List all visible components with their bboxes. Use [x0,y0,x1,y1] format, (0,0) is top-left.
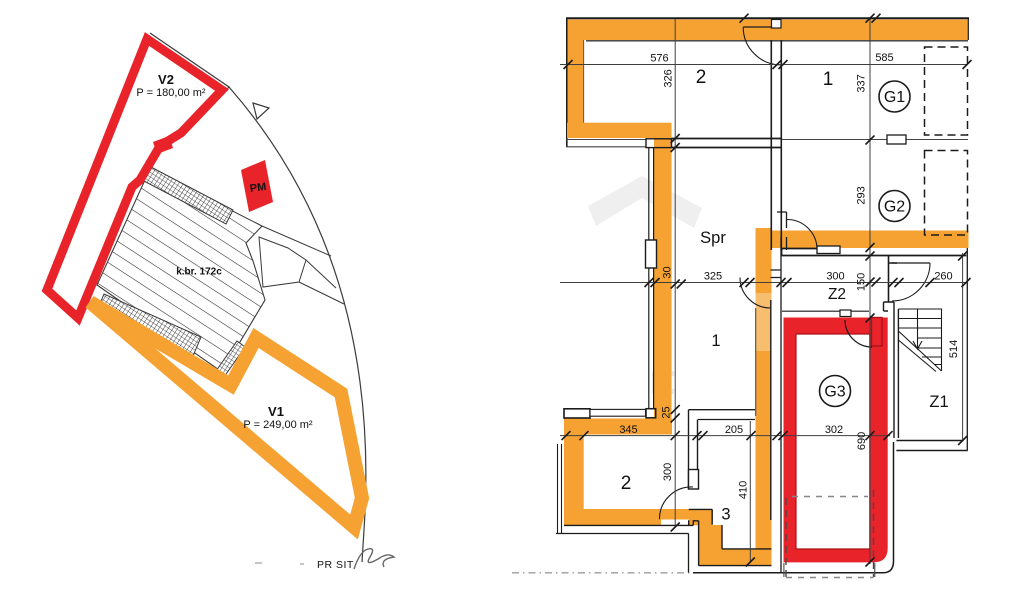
svg-text:k.br. 172c: k.br. 172c [176,267,222,278]
svg-text:345: 345 [619,424,637,436]
svg-text:300: 300 [826,271,844,283]
svg-text:25: 25 [661,406,673,418]
svg-text:G2: G2 [884,199,905,216]
svg-text:576: 576 [650,53,668,65]
svg-text:V2: V2 [158,72,174,87]
svg-text:1: 1 [711,332,720,350]
svg-text:G1: G1 [884,89,905,106]
svg-text:PM: PM [249,181,267,195]
svg-text:2: 2 [621,473,632,494]
svg-text:Z2: Z2 [828,286,846,303]
svg-text:585: 585 [875,52,893,64]
svg-text:G3: G3 [824,384,845,401]
svg-text:Z1: Z1 [929,393,948,411]
svg-text:205: 205 [725,424,743,436]
svg-text:Spr: Spr [700,229,726,247]
svg-text:150: 150 [856,273,868,291]
svg-text:337: 337 [856,74,868,92]
svg-text:V1: V1 [268,404,284,419]
svg-text:260: 260 [934,271,952,283]
svg-text:326: 326 [663,69,675,87]
svg-text:293: 293 [856,186,868,204]
svg-text:3: 3 [721,506,730,524]
svg-text:P = 180,00 m²: P = 180,00 m² [136,87,206,99]
svg-text:325: 325 [704,271,722,283]
svg-text:690: 690 [856,432,868,450]
svg-text:2: 2 [696,67,707,88]
svg-text:514: 514 [948,340,960,358]
svg-text:PR SIT: PR SIT [317,559,354,571]
svg-text:302: 302 [825,424,843,436]
svg-text:P = 249,00 m²: P = 249,00 m² [243,419,313,431]
svg-text:1: 1 [823,69,834,90]
svg-text:300: 300 [662,463,674,481]
svg-text:30: 30 [662,266,674,278]
svg-text:410: 410 [738,481,750,499]
